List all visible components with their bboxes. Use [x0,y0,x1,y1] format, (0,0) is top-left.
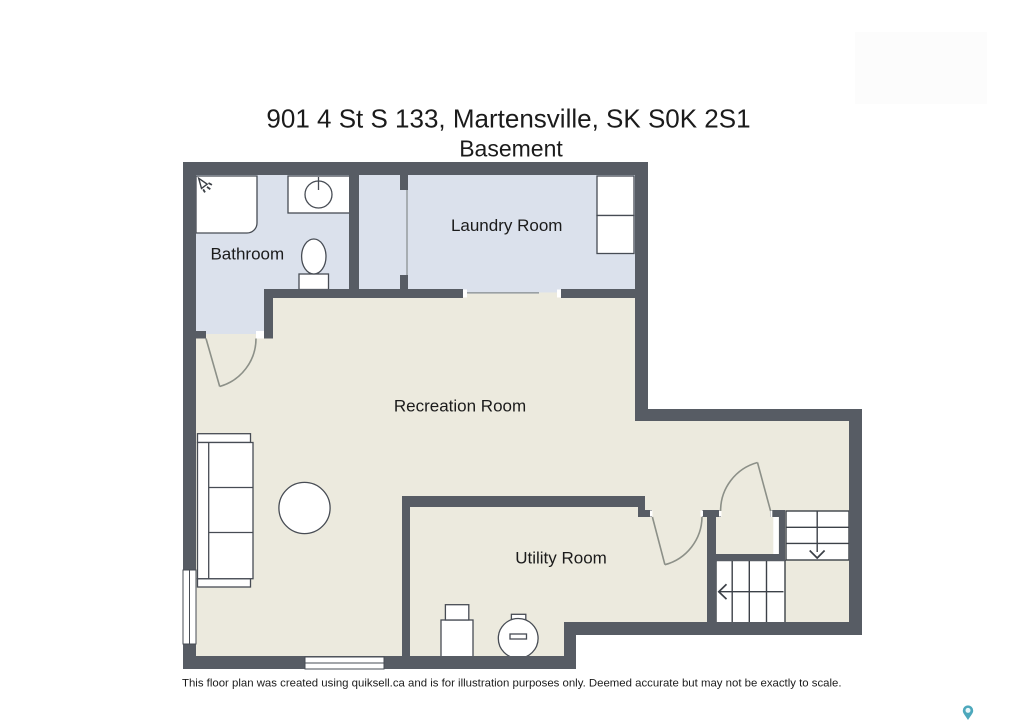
svg-text:Basement: Basement [459,136,563,162]
svg-text:901 4 St S 133, Martensville,: 901 4 St S 133, Martensville, SK S0K 2S1 [266,104,750,134]
svg-text:Bathroom: Bathroom [210,245,284,264]
svg-text:Recreation Room: Recreation Room [394,397,526,416]
svg-text:Utility Room: Utility Room [515,549,607,568]
svg-text:This floor plan was created us: This floor plan was created using quikse… [182,678,842,690]
svg-text:Laundry Room: Laundry Room [451,216,563,235]
